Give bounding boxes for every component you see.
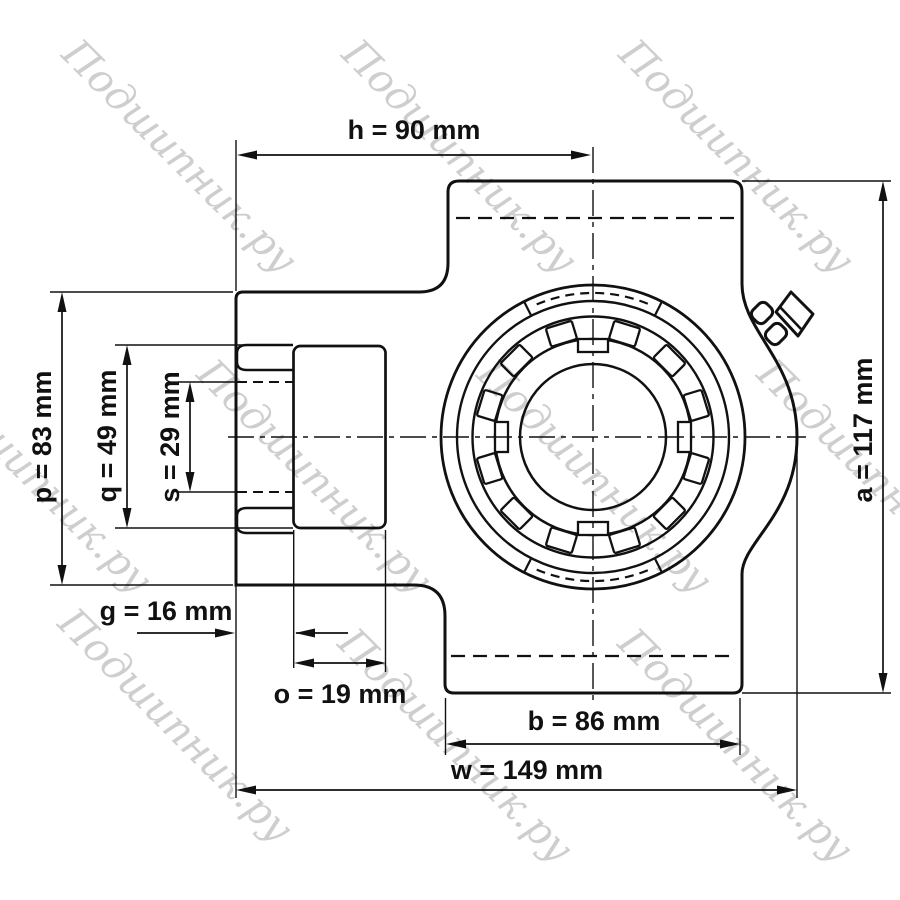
dim-label-q: q = 49 mm <box>92 370 122 503</box>
dim-label-g: g = 16 mm <box>100 596 233 626</box>
slide-step-top <box>237 345 293 370</box>
dim-label-b: b = 86 mm <box>528 706 661 736</box>
bearing-unit-drawing: h = 90 mm p = 83 mm q = 49 mm s = 29 mm … <box>0 0 900 900</box>
slide-step-bottom <box>237 508 293 533</box>
dim-label-s: s = 29 mm <box>155 371 185 502</box>
technical-drawing-page: h = 90 mm p = 83 mm q = 49 mm s = 29 mm … <box>0 0 900 900</box>
